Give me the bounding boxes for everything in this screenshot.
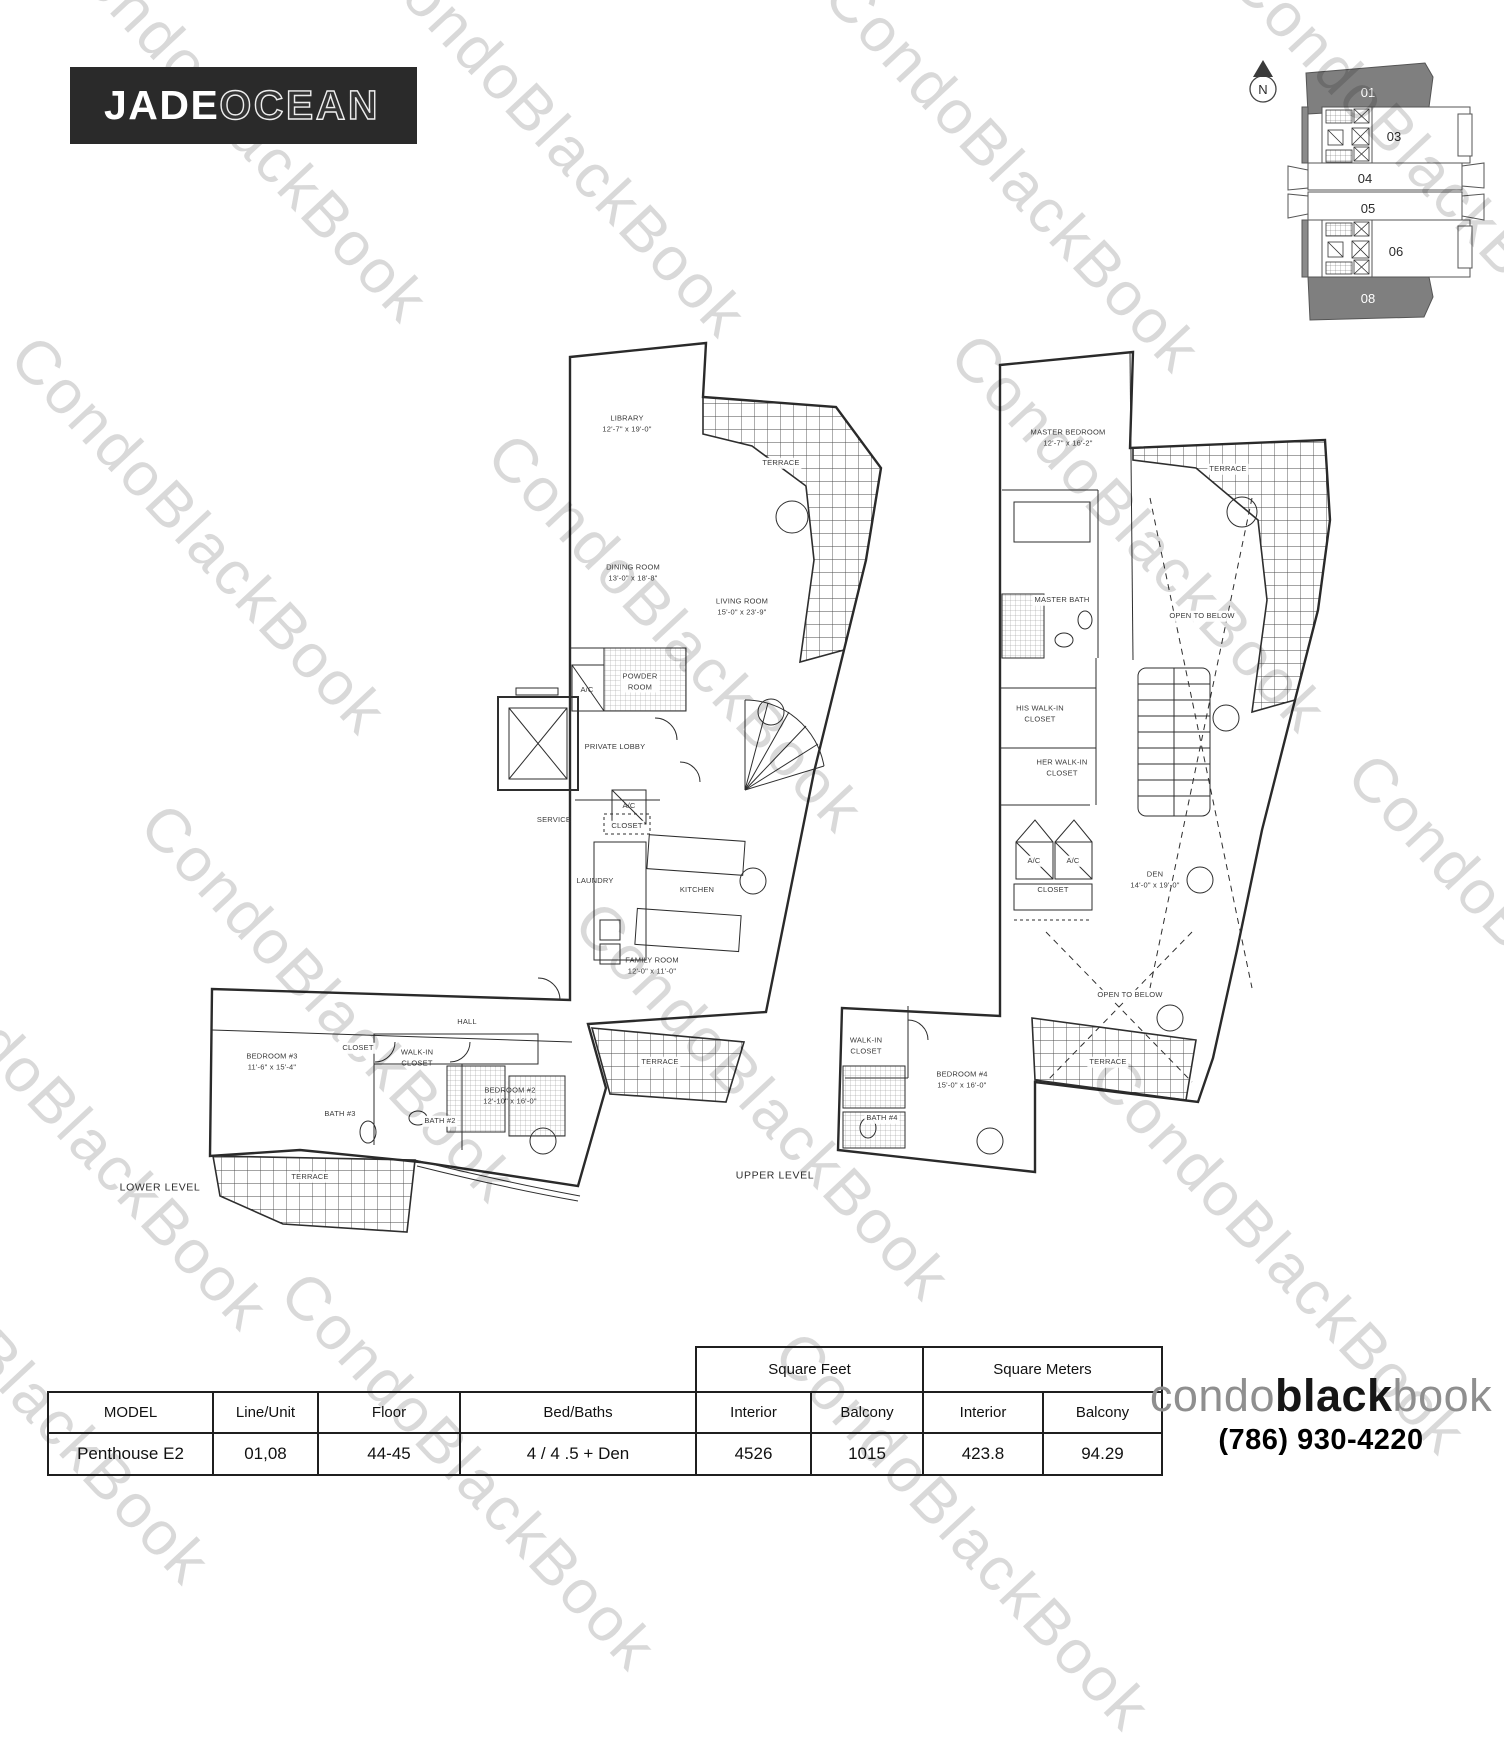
cell-floor: 44-45 (318, 1433, 460, 1475)
group-header-square-feet: Square Feet (696, 1347, 923, 1392)
lower-terrace-bottom-right (592, 1028, 744, 1102)
keyplan-unit-03-label: 03 (1387, 129, 1401, 144)
col-header-bed-baths: Bed/Baths (460, 1392, 696, 1433)
keyplan-unit-08-label: 08 (1361, 291, 1375, 306)
jade-ocean-logo: JADEOCEAN (70, 67, 417, 144)
col-header-sf-interior: Interior (696, 1392, 811, 1433)
cell-sm-interior: 423.8 (923, 1433, 1043, 1475)
footer-branding: condoblackbook (786) 930-4220 (1138, 1372, 1504, 1457)
upper-terrace-top (1133, 440, 1330, 712)
keyplan-unit-06-shape (1372, 220, 1470, 277)
condoblackbook-logo: condoblackbook (1138, 1372, 1504, 1419)
lower-terrace-bottom-left (213, 1156, 415, 1232)
cell-line-unit: 01,08 (213, 1433, 318, 1475)
col-header-sm-interior: Interior (923, 1392, 1043, 1433)
footer-logo-condo: condo (1150, 1370, 1275, 1421)
keyplan-unit-05-shape (1308, 192, 1462, 220)
keyplan-unit-04-label: 04 (1358, 171, 1372, 186)
floorplan-drawing: N (0, 0, 1504, 1502)
keyplan-unit-04-shape (1308, 163, 1462, 190)
cell-bed-baths: 4 / 4 .5 + Den (460, 1433, 696, 1475)
col-header-floor: Floor (318, 1392, 460, 1433)
cell-sf-interior: 4526 (696, 1433, 811, 1475)
group-header-square-meters: Square Meters (923, 1347, 1162, 1392)
footer-logo-book: book (1393, 1370, 1493, 1421)
upper-level-plan (838, 352, 1330, 1172)
upper-terrace-bottom (1032, 1018, 1196, 1100)
col-header-line-unit: Line/Unit (213, 1392, 318, 1433)
phone-number: (786) 930-4220 (1138, 1424, 1504, 1457)
keyplan-unit-05-label: 05 (1361, 201, 1375, 216)
col-header-model: MODEL (48, 1392, 213, 1433)
footer-logo-black: black (1275, 1370, 1393, 1421)
north-label: N (1258, 82, 1267, 97)
logo-primary-text: JADE (104, 82, 219, 129)
lower-level-plan (210, 343, 881, 1232)
lower-terrace-top (703, 397, 881, 662)
north-arrow-icon: N (1250, 60, 1276, 102)
keyplan-unit-01-label: 01 (1361, 85, 1375, 100)
keyplan: N (1250, 60, 1484, 320)
logo-secondary-text: OCEAN (219, 82, 380, 129)
cell-model: Penthouse E2 (48, 1433, 213, 1475)
col-header-sf-balcony: Balcony (811, 1392, 923, 1433)
keyplan-unit-06-label: 06 (1389, 244, 1403, 259)
unit-spec-table: Square Feet Square Meters MODEL Line/Uni… (47, 1346, 1163, 1476)
floorplan-page: { "branding": { "logo_primary": "JADE", … (0, 0, 1504, 1502)
lower-outer-walls (210, 343, 881, 1186)
table-row: Penthouse E2 01,08 44-45 4 / 4 .5 + Den … (48, 1433, 1162, 1475)
cell-sf-balcony: 1015 (811, 1433, 923, 1475)
